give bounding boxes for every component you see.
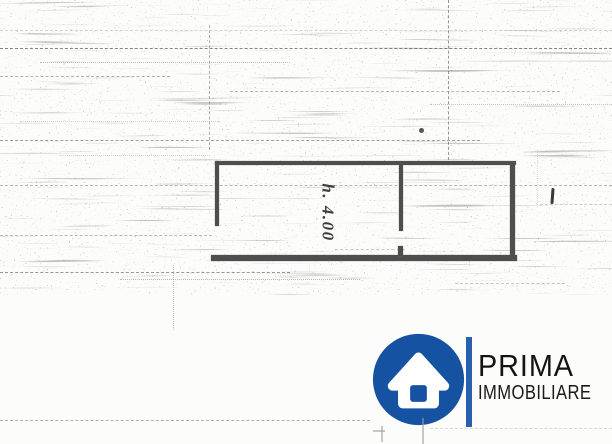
logo: PRIMA IMMOBILIARE	[372, 331, 608, 431]
scan-streak-vertical	[209, 25, 210, 150]
scan-streak	[0, 48, 612, 49]
brand-text: PRIMA IMMOBILIARE	[478, 351, 612, 403]
wall-bottom	[211, 255, 517, 261]
scan-noise-texture	[0, 0, 612, 295]
scan-streak	[0, 272, 290, 273]
wall-top	[215, 161, 516, 165]
scan-streak	[20, 121, 220, 122]
scan-streak	[430, 104, 612, 105]
survey-tick-mark	[550, 188, 554, 204]
wall-left	[215, 161, 219, 226]
scan-streak	[0, 185, 612, 186]
height-annotation: h. 4.00	[319, 174, 338, 252]
scanned-floor-plan-page: h. 4.00 PRIMA IMMOBILIARE	[0, 0, 612, 444]
scan-streak-vertical	[448, 0, 449, 160]
pencil-mark	[373, 430, 385, 432]
scan-streak	[0, 76, 170, 77]
scan-streak	[120, 279, 360, 280]
house-icon	[372, 333, 465, 426]
scan-streak	[230, 91, 560, 92]
scan-streak	[455, 283, 565, 284]
scan-streak	[0, 140, 480, 141]
scan-streak-vertical	[173, 265, 174, 330]
brand-subtitle: IMMOBILIARE	[478, 384, 591, 403]
scan-streak	[60, 155, 210, 156]
scan-streak	[0, 420, 370, 421]
scan-streak-vertical	[537, 150, 538, 205]
brand-name: PRIMA	[478, 351, 605, 381]
scan-streak	[335, 249, 405, 250]
wall-divider	[399, 164, 403, 231]
scan-streak	[540, 204, 612, 205]
wall-divider-stub	[398, 246, 403, 256]
scan-blob	[419, 128, 424, 133]
wall-right	[510, 163, 515, 260]
pencil-mark	[422, 418, 424, 444]
pencil-mark	[381, 426, 383, 442]
scan-streak	[0, 30, 612, 31]
logo-divider-bar	[466, 337, 472, 427]
scan-streak	[0, 235, 212, 236]
scan-streak	[40, 62, 290, 63]
